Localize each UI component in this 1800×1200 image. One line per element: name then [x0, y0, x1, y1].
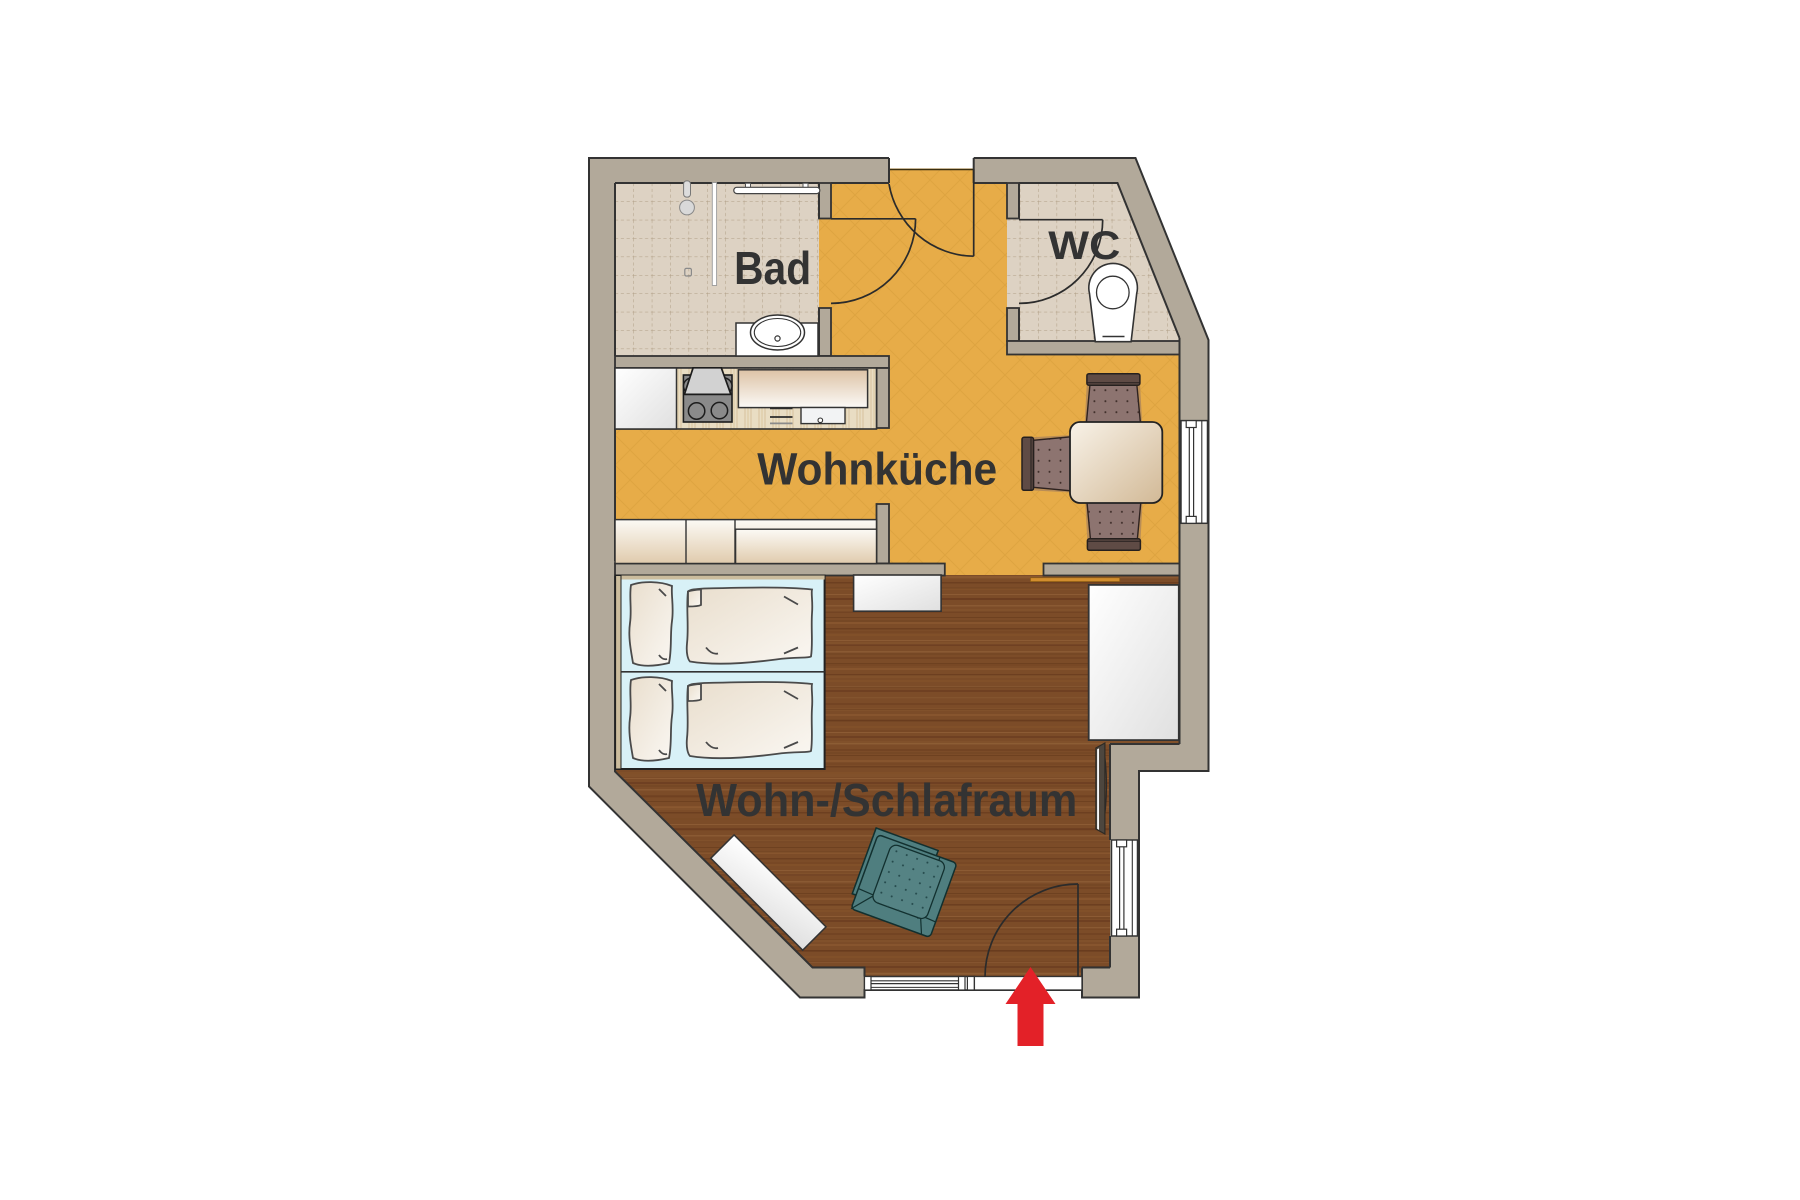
svg-text:WC: WC: [1048, 224, 1120, 268]
svg-text:Bad: Bad: [734, 242, 811, 294]
svg-text:Wohnküche: Wohnküche: [757, 443, 997, 494]
svg-text:Wohn-/Schlafraum: Wohn-/Schlafraum: [696, 774, 1077, 826]
